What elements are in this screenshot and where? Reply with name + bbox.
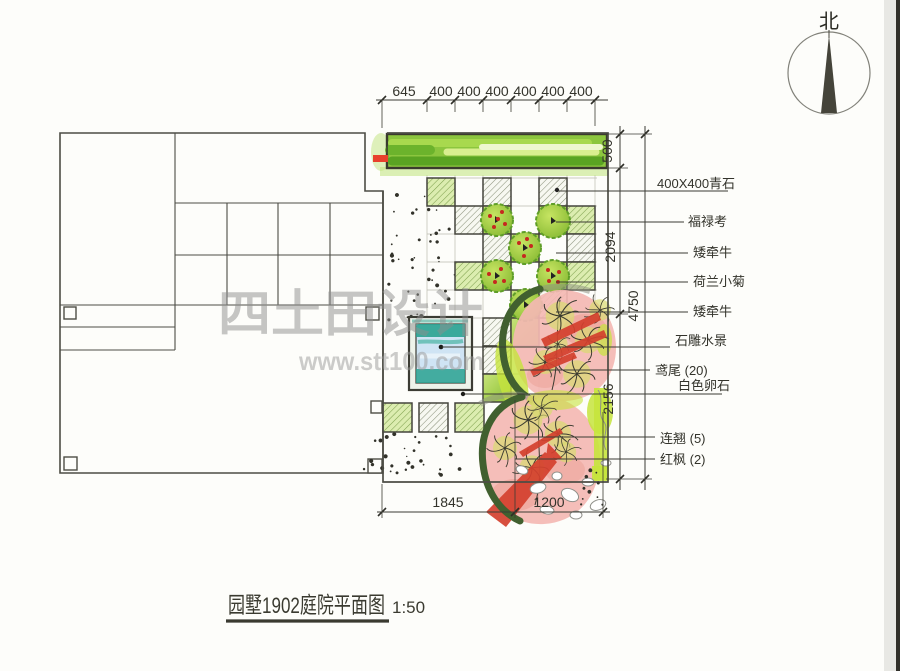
label-iris: 鸢尾 (20) [655,363,708,378]
dim-value: 1845 [432,494,463,510]
stone-tile [539,178,567,206]
dim-value: 400 [541,83,565,99]
label-phlox: 福禄考 [688,214,727,229]
dim-value: 1200 [533,494,564,510]
label-red-maple: 红枫 (2) [660,452,706,467]
garden-plan-sheet: 北 [0,0,900,671]
label-stone-water-feature: 石雕水景 [675,333,727,348]
watermark-url: www.stt100.com [298,346,484,376]
drawing-title: 园墅1902庭院平面图 [228,593,385,618]
shrub [509,232,541,264]
scan-edge [884,0,900,671]
dim-value: 400 [513,83,537,99]
dim-value: 400 [429,83,453,99]
label-petunia-1: 矮牵牛 [693,245,732,260]
dim-value: 400 [485,83,509,99]
red-marker-dash [373,155,388,162]
dim-value: 400 [457,83,481,99]
stone-tile [483,234,511,262]
stone-tile [455,403,484,432]
label-white-pebbles: 白色卵石 [678,378,730,393]
dim-value: 4750 [625,290,641,321]
garden-plan-drawing: 北 [0,0,900,671]
stone-tile [483,178,511,206]
stone-tile [567,206,595,234]
label-forsythia: 连翘 (5) [660,431,706,446]
title-block: 园墅1902庭院平面图 1:50 [226,593,425,621]
stone-tile [567,234,595,262]
drawing-scale: 1:50 [392,598,425,617]
label-petunia-2: 矮牵牛 [693,304,732,319]
stone-tile [419,403,448,432]
shrub [536,204,570,238]
watermark-text: 四土田设计 [218,286,483,342]
dim-value: 500 [599,139,615,163]
stone-tile [383,403,412,432]
leader-anchor-dot [461,392,465,396]
compass-label: 北 [819,10,839,33]
stone-tile [427,178,455,206]
dim-value: 2094 [602,231,618,262]
label-stone: 400X400青石 [657,176,735,191]
dim-value: 400 [569,83,593,99]
dim-value: 645 [392,83,416,99]
stone-tile [455,206,483,234]
leader-anchor-dot [555,188,559,192]
dim-value: 2156 [600,383,616,414]
label-dutch-chrysanthemum: 荷兰小菊 [693,274,745,289]
shrub [481,260,513,292]
shrub [481,204,513,236]
hedge-strip [371,133,608,176]
